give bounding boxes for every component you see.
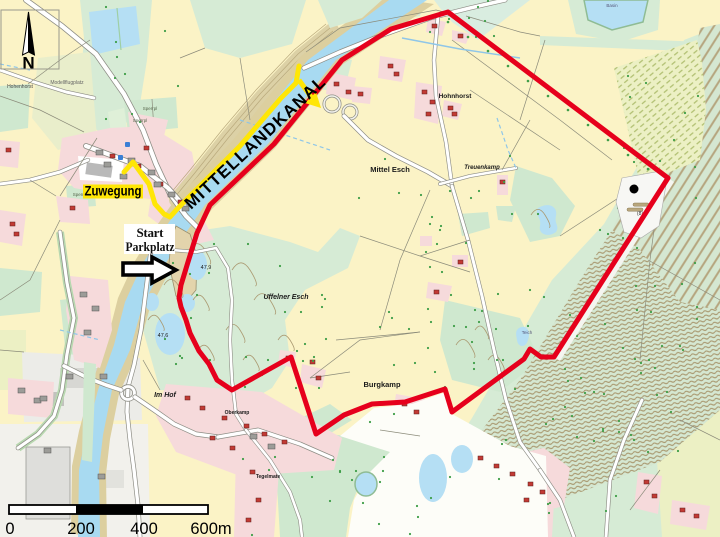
svg-text:Uffelner Esch: Uffelner Esch [264,294,309,301]
svg-text:47,9: 47,9 [201,265,212,271]
svg-text:Start: Start [137,225,165,240]
svg-text:47,6: 47,6 [158,333,169,339]
svg-text:Burgkamp: Burgkamp [363,380,401,389]
svg-text:Im Hof: Im Hof [154,392,176,399]
svg-text:Basin: Basin [606,3,618,8]
svg-text:Tegelmate: Tegelmate [256,474,281,480]
svg-text:N: N [22,54,34,73]
svg-text:Oberkamp: Oberkamp [225,410,250,416]
svg-text:Mittel Esch: Mittel Esch [370,165,410,174]
svg-text:0: 0 [5,520,14,537]
svg-text:Parkplatz: Parkplatz [126,239,175,254]
svg-text:Hohenhorst: Hohenhorst [7,84,33,90]
svg-text:Zuwegung: Zuwegung [85,184,142,199]
svg-text:600m: 600m [190,520,231,537]
svg-text:Hohnhorst: Hohnhorst [439,93,473,100]
svg-text:200: 200 [67,520,95,537]
svg-text:400: 400 [130,520,158,537]
svg-text:Modellflugplatz: Modellflugplatz [50,80,84,86]
svg-text:Treuenkamp: Treuenkamp [464,165,500,171]
svg-text:Sperrpl: Sperrpl [143,106,158,111]
svg-text:Sperrpl: Sperrpl [133,118,148,123]
svg-text:Teich: Teich [522,330,533,335]
